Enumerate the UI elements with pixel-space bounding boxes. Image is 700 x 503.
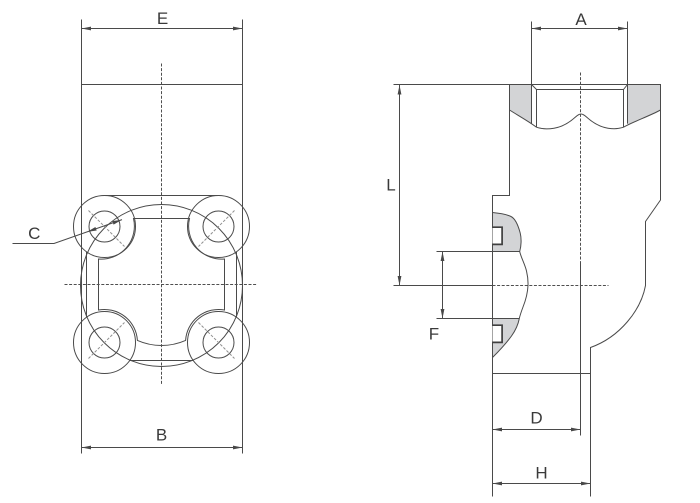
svg-text:E: E	[157, 9, 168, 28]
svg-text:F: F	[429, 325, 439, 344]
svg-text:B: B	[156, 426, 167, 445]
svg-text:L: L	[386, 176, 395, 195]
svg-text:A: A	[575, 10, 587, 29]
svg-text:H: H	[535, 464, 547, 483]
svg-text:C: C	[28, 224, 40, 243]
svg-text:D: D	[530, 409, 542, 428]
